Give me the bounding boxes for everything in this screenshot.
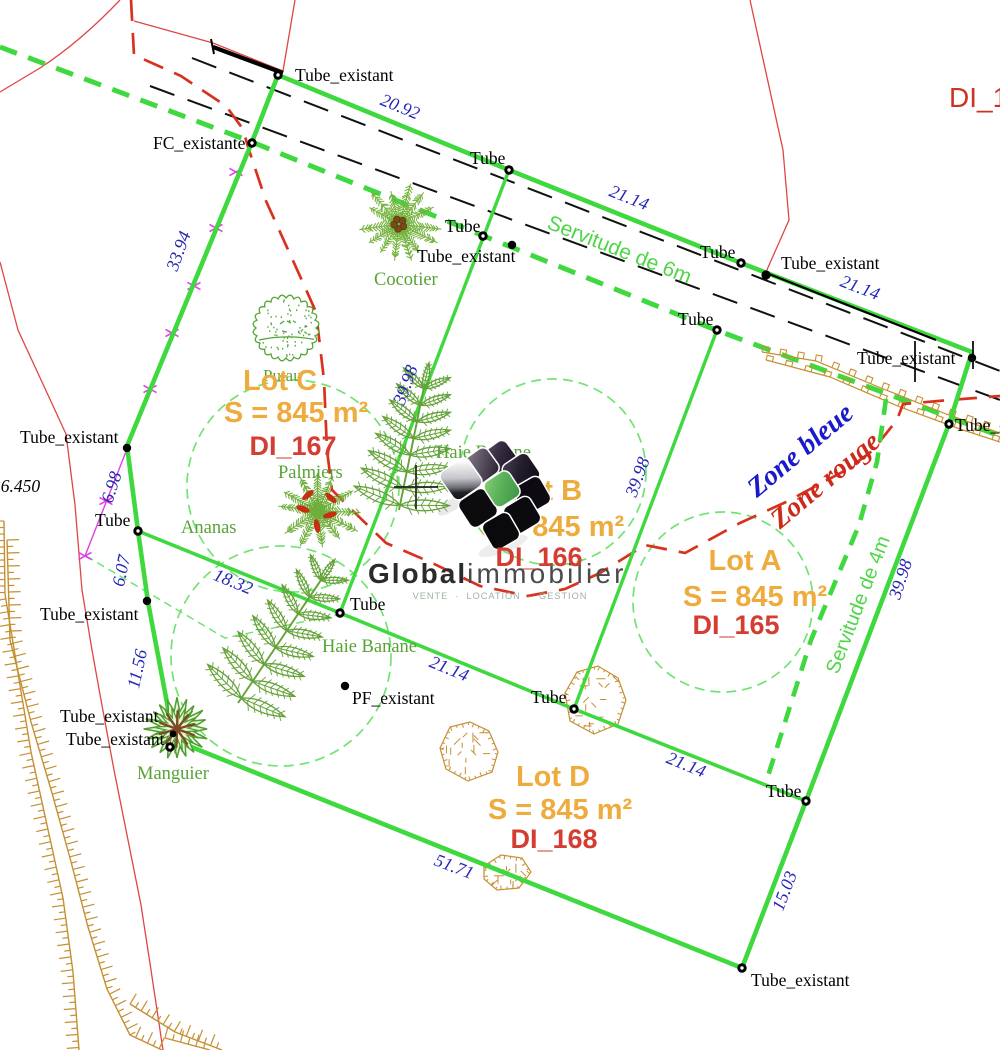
svg-text:Tube_existant: Tube_existant [781, 253, 880, 273]
svg-text:DI_165: DI_165 [692, 610, 779, 640]
svg-text:DI_167: DI_167 [249, 431, 336, 461]
svg-text:S = 845 m²: S = 845 m² [488, 794, 633, 826]
svg-text:Lot D: Lot D [516, 761, 590, 793]
svg-text:VENTE · LOCATION · GESTION: VENTE · LOCATION · GESTION [413, 591, 588, 601]
svg-text:Tube: Tube [95, 510, 131, 530]
svg-text:Tube: Tube [350, 594, 386, 614]
svg-text:S = 845 m²: S = 845 m² [683, 581, 828, 613]
svg-text:Cocotier: Cocotier [374, 270, 438, 290]
svg-text:FC_existante: FC_existante [153, 133, 246, 153]
svg-text:Manguier: Manguier [137, 764, 209, 784]
svg-text:Tube_existant: Tube_existant [66, 729, 165, 749]
svg-text:Tube_existant: Tube_existant [751, 970, 850, 990]
svg-text:Tube: Tube [678, 309, 714, 329]
svg-text:Tube: Tube [470, 148, 506, 168]
svg-text:Tube_existant: Tube_existant [40, 604, 139, 624]
svg-text:DI_168: DI_168 [510, 824, 597, 854]
svg-text:Tube_existant: Tube_existant [295, 65, 394, 85]
svg-text:Tube_existant: Tube_existant [60, 706, 159, 726]
svg-text:Tube: Tube [700, 242, 736, 262]
svg-text:Tube_existant: Tube_existant [857, 348, 956, 368]
svg-text:Tube_existant: Tube_existant [417, 246, 516, 266]
svg-text:Lot C: Lot C [243, 365, 317, 397]
svg-text:Tube: Tube [766, 781, 802, 801]
svg-text:PF_existant: PF_existant [352, 688, 435, 708]
svg-text:Tube_ex: Tube_ex [955, 415, 1000, 435]
svg-text:Tube: Tube [445, 216, 481, 236]
svg-text:DI_16: DI_16 [949, 82, 1000, 113]
svg-text:Tube_existant: Tube_existant [20, 427, 119, 447]
svg-text:Tube: Tube [531, 687, 567, 707]
svg-text:Lot A: Lot A [708, 545, 781, 577]
svg-text:DI_166: DI_166 [495, 542, 582, 572]
svg-text:Haie Banane: Haie Banane [322, 637, 417, 657]
svg-text:Ananas: Ananas [181, 518, 236, 538]
svg-text:36.450: 36.450 [0, 476, 40, 496]
svg-text:Palmiers: Palmiers [278, 463, 343, 483]
svg-text:S = 845 m²: S = 845 m² [224, 397, 369, 429]
